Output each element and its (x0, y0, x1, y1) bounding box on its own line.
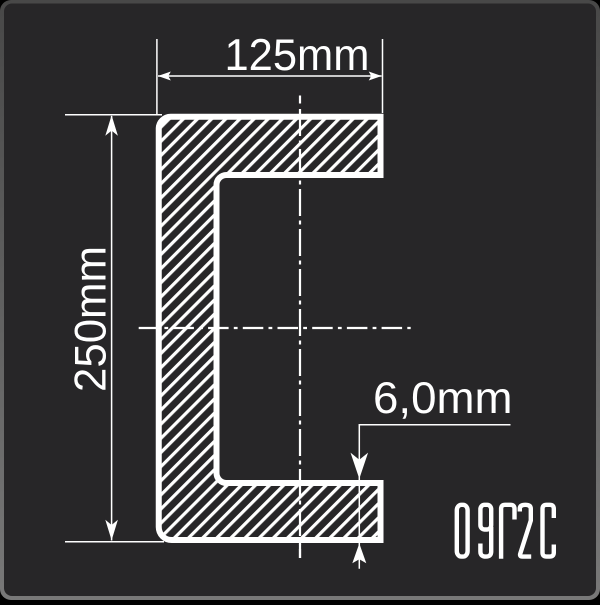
svg-text:6,0mm: 6,0mm (373, 374, 513, 423)
svg-text:250mm: 250mm (67, 246, 116, 392)
svg-text:125mm: 125mm (225, 31, 370, 80)
